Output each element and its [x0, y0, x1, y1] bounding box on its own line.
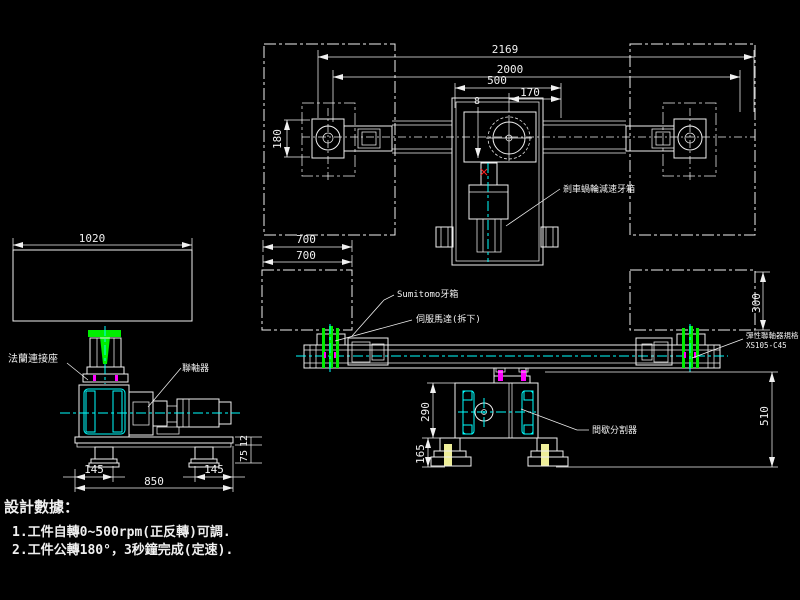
dim-145-left: 145 [84, 463, 104, 476]
gearbox-leader [506, 189, 560, 226]
spec-label-line1: 彈性聯軸器規格 [746, 330, 799, 340]
dim-145-right: 145 [204, 463, 224, 476]
dim-1020: 1020 [79, 232, 106, 245]
gearbox-housing [79, 385, 129, 437]
flange-leader [67, 363, 88, 380]
notes-item-1: 1.工件自轉0~500rpm(正反轉)可調. [12, 524, 231, 540]
spec-leader [692, 339, 743, 358]
dim-170: 170 [520, 86, 540, 99]
right-clamp [677, 324, 705, 374]
dim-510: 510 [758, 406, 771, 426]
indexer-feet [431, 438, 568, 466]
notes-title: 設計數據： [4, 498, 79, 516]
indexer-label: 間歇分割器 [592, 424, 637, 436]
red-marker [481, 169, 487, 175]
indexer-view: 290 165 間歇分割器 [414, 368, 637, 467]
spec-label-line2: XS105-C45 [746, 341, 787, 350]
front-view-dimensions: 300 510 [545, 272, 778, 467]
right-column-phantom [630, 44, 755, 235]
dim-165: 165 [414, 444, 427, 464]
dim-2169: 2169 [492, 43, 519, 56]
top-view-dimensions: 2169 2000 500 170 8 180 700 700 [263, 43, 754, 267]
sumitomo-leader [352, 295, 394, 336]
top-view: 剎車蝸輪減速牙箱 2169 2000 500 170 8 180 700 [263, 43, 755, 267]
side-view: 1020 [8, 232, 262, 492]
front-view: Sumitomo牙箱 伺服馬達(拆下) 彈性聯軸器規格 XS105-C45 30… [262, 270, 799, 467]
chuck-assembly [83, 326, 128, 384]
dim-75: 75 [239, 450, 250, 462]
right-column-front [630, 270, 755, 330]
design-notes: 設計數據： 1.工件自轉0~500rpm(正反轉)可調. 2.工件公轉180°，… [4, 498, 233, 558]
dim-300: 300 [750, 293, 763, 313]
dim-500: 500 [487, 74, 507, 87]
left-spindle-phantom [302, 103, 355, 176]
motor-assembly [60, 392, 240, 435]
dim-180: 180 [271, 129, 284, 149]
cad-drawing-area[interactable]: 剎車蝸輪減速牙箱 2169 2000 500 170 8 180 700 [0, 0, 800, 600]
right-spindle-unit [626, 119, 706, 158]
sumitomo-label: Sumitomo牙箱 [397, 288, 458, 300]
right-spindle-phantom [663, 103, 716, 176]
left-spindle-unit [312, 119, 392, 158]
left-column-front [262, 270, 352, 330]
left-beam-gearbox [348, 338, 388, 365]
dim-bolt-callout: 8 [474, 96, 480, 107]
indexer-body [455, 368, 538, 438]
dim-850: 850 [144, 475, 164, 488]
table-plate [13, 250, 192, 321]
gearbox-label: 剎車蝸輪減速牙箱 [563, 183, 635, 195]
left-clamp [317, 324, 345, 374]
side-view-dimensions: 145 145 850 12 75 [63, 435, 262, 492]
cad-canvas[interactable]: 剎車蝸輪減速牙箱 2169 2000 500 170 8 180 700 [0, 0, 800, 600]
dim-700-b: 700 [296, 249, 316, 262]
dim-290: 290 [419, 402, 432, 422]
flange-label: 法蘭連接座 [8, 352, 58, 365]
dim-12: 12 [239, 435, 250, 447]
notes-item-2: 2.工件公轉180°，3秒鐘完成(定速). [12, 542, 233, 558]
right-beam-gearbox [636, 338, 672, 365]
servo-label: 伺服馬達(拆下) [416, 313, 481, 325]
indexer-leader [521, 409, 589, 430]
coupling-label: 聯軸器 [182, 362, 209, 374]
central-gearbox [436, 98, 558, 265]
dim-700-a: 700 [296, 233, 316, 246]
